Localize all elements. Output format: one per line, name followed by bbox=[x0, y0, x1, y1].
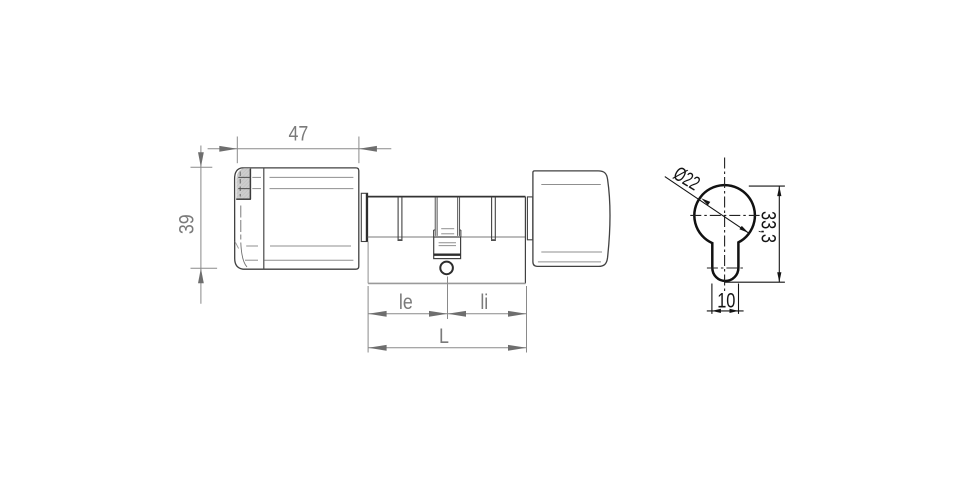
svg-text:L: L bbox=[439, 325, 449, 349]
svg-text:39: 39 bbox=[175, 214, 199, 234]
svg-text:47: 47 bbox=[288, 122, 308, 146]
svg-text:33,3: 33,3 bbox=[757, 211, 780, 243]
svg-text:10: 10 bbox=[717, 288, 735, 311]
svg-text:li: li bbox=[480, 290, 488, 314]
svg-text:Ø22: Ø22 bbox=[670, 162, 705, 195]
svg-text:le: le bbox=[399, 290, 413, 314]
